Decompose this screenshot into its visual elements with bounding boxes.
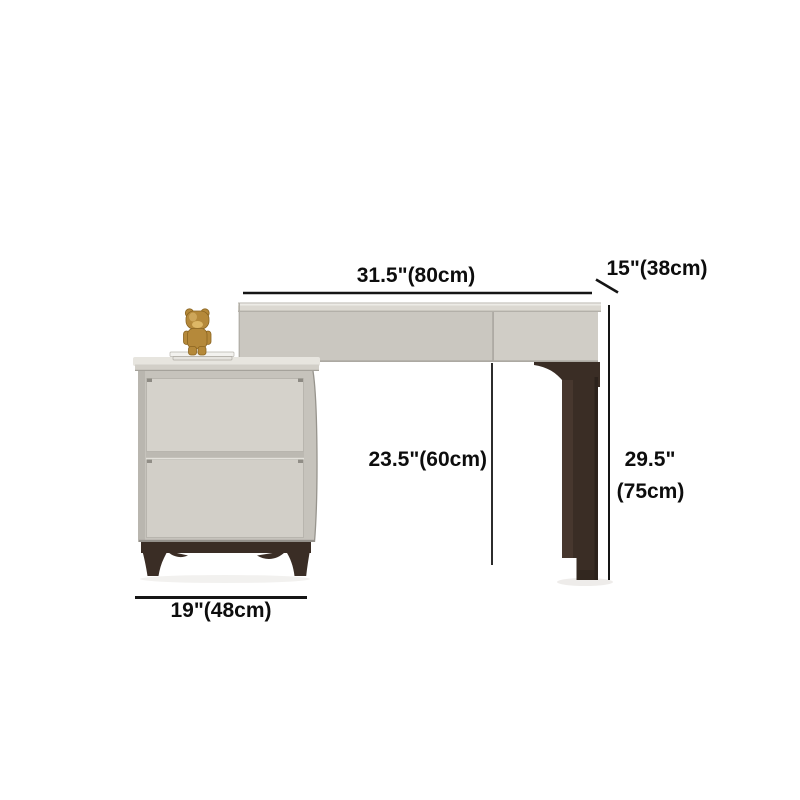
leg-right-edge <box>595 377 599 580</box>
bear-muzzle <box>192 321 203 328</box>
base-left-leg <box>142 550 168 576</box>
cabinet <box>133 357 320 542</box>
base-right-leg <box>285 550 310 576</box>
desk-apron-right <box>494 311 598 362</box>
cabinet-base <box>141 542 311 576</box>
bear-leg-left <box>189 347 197 356</box>
desk-depth-label: 15"(38cm) <box>577 258 737 280</box>
cabinet-bottom-shadow <box>139 540 315 542</box>
cabinet-drawer-top <box>146 378 304 452</box>
desk-depth-line <box>596 280 618 293</box>
under-desk-height-label: 23.5"(60cm) <box>330 449 487 471</box>
desk-top-edge-line <box>238 303 601 304</box>
desk-leg <box>534 362 600 580</box>
furniture-illustration <box>0 0 800 800</box>
cabinet-top-edge-line <box>135 370 319 371</box>
overall-height-cm-label: (75cm) <box>598 481 703 503</box>
bear-body <box>188 329 208 349</box>
desk-drawer-seam <box>492 312 493 362</box>
floor-shadows <box>140 575 613 586</box>
cabinet-width-label: 19"(48cm) <box>146 600 296 622</box>
drawer-divider-highlight <box>146 458 304 460</box>
desk <box>238 303 601 363</box>
bear-leg-right <box>198 347 206 356</box>
book-bottom <box>173 357 232 361</box>
desk-width-label: 31.5"(80cm) <box>316 265 516 287</box>
product-dimension-image: 31.5"(80cm) 15"(38cm) 23.5"(60cm) 29.5" … <box>0 0 800 800</box>
cabinet-shadow <box>140 575 310 583</box>
cabinet-left-frame <box>138 371 145 542</box>
cabinet-top-front-edge <box>135 365 319 371</box>
drawer-handle-notch <box>147 460 152 464</box>
bear-figurine <box>184 309 212 355</box>
drawer-handle-notch <box>298 379 303 383</box>
leg-front-face <box>562 380 573 558</box>
drawer-handle-notch <box>147 379 152 383</box>
leg-foot <box>577 570 599 580</box>
desk-top-underline <box>238 311 601 312</box>
cabinet-drawer-bottom <box>146 459 304 538</box>
bear-highlight <box>189 313 197 322</box>
desk-left-edge <box>239 303 240 362</box>
overall-height-inches-label: 29.5" <box>600 449 700 471</box>
drawer-handle-notch <box>298 460 303 464</box>
